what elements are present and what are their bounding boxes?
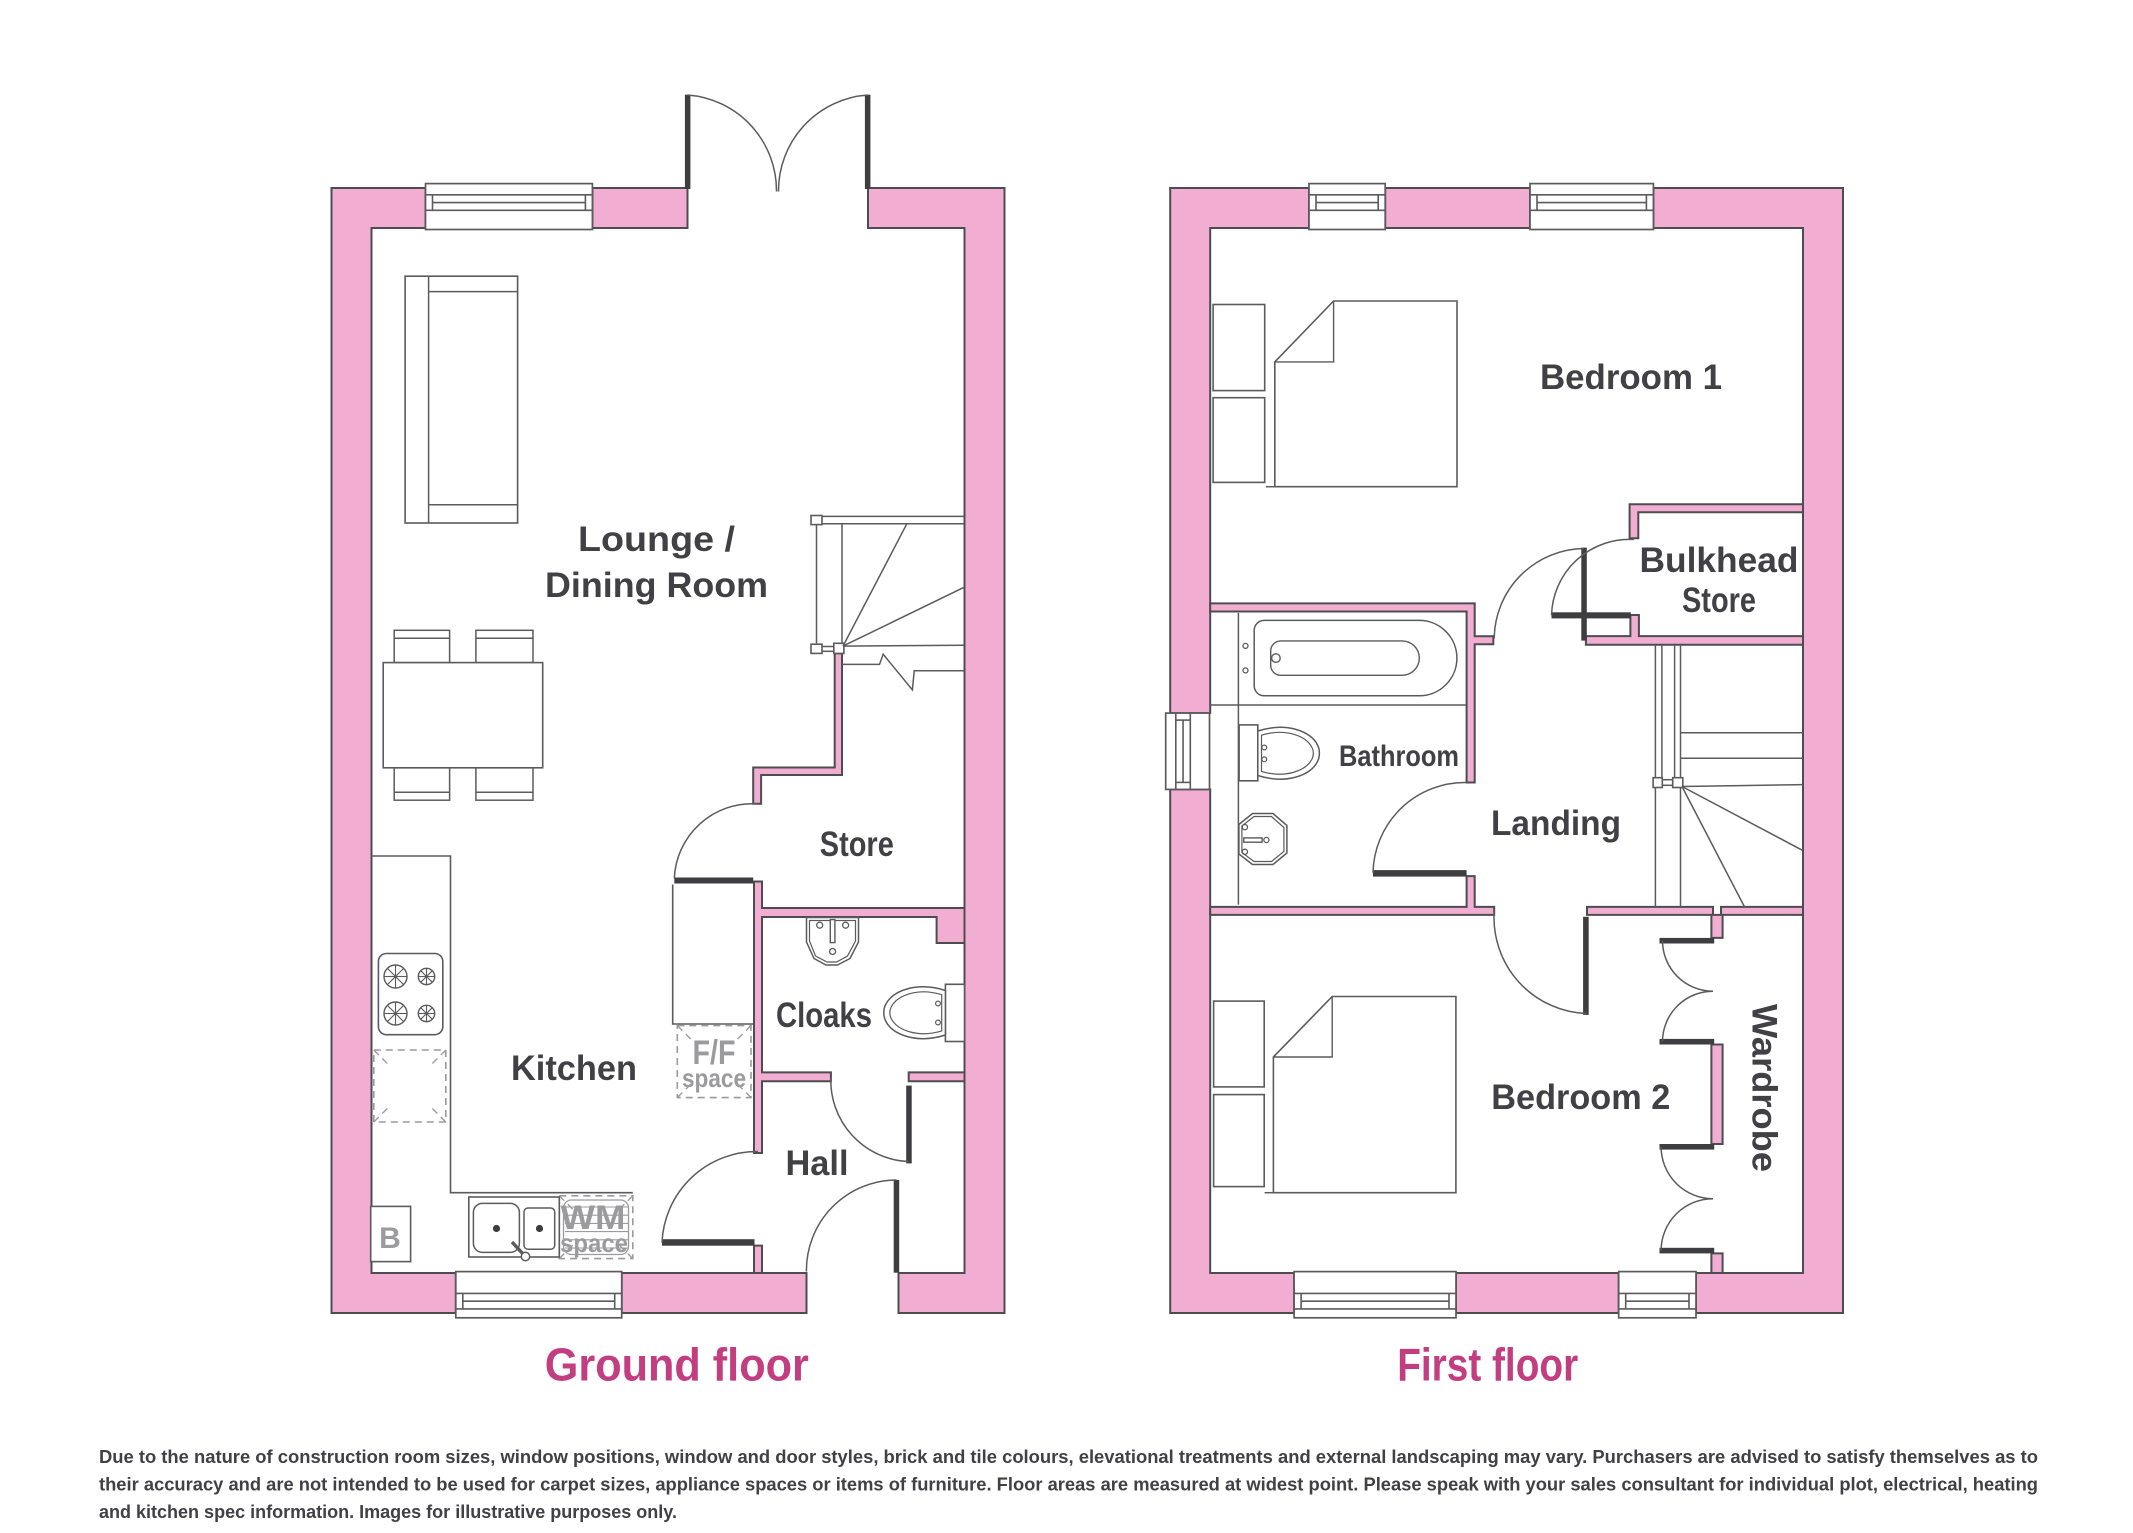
svg-text:Bedroom 2: Bedroom 2 — [1491, 1078, 1670, 1117]
svg-text:space: space — [560, 1228, 628, 1258]
svg-text:their accuracy and are not int: their accuracy and are not intended to b… — [99, 1474, 2038, 1495]
svg-text:Dining Room: Dining Room — [545, 566, 768, 605]
svg-text:Cloaks: Cloaks — [776, 996, 872, 1035]
svg-text:B: B — [379, 1222, 401, 1255]
svg-text:Wardrobe: Wardrobe — [1745, 1004, 1784, 1172]
svg-text:Bulkhead: Bulkhead — [1640, 541, 1799, 580]
svg-text:Bedroom 1: Bedroom 1 — [1540, 358, 1722, 397]
svg-text:Ground floor: Ground floor — [545, 1339, 809, 1391]
svg-text:First floor: First floor — [1397, 1339, 1578, 1391]
svg-text:Lounge /: Lounge / — [578, 520, 735, 559]
svg-text:Store: Store — [1682, 581, 1756, 620]
svg-text:Kitchen: Kitchen — [511, 1049, 637, 1088]
svg-text:Hall: Hall — [786, 1144, 849, 1183]
svg-text:Due to the nature of construct: Due to the nature of construction room s… — [99, 1446, 2038, 1467]
svg-text:Landing: Landing — [1491, 804, 1621, 843]
svg-text:space: space — [682, 1063, 746, 1093]
svg-text:Bathroom: Bathroom — [1339, 740, 1459, 773]
svg-text:Store: Store — [820, 825, 894, 864]
svg-text:and kitchen spec information.: and kitchen spec information. Images for… — [99, 1501, 677, 1522]
